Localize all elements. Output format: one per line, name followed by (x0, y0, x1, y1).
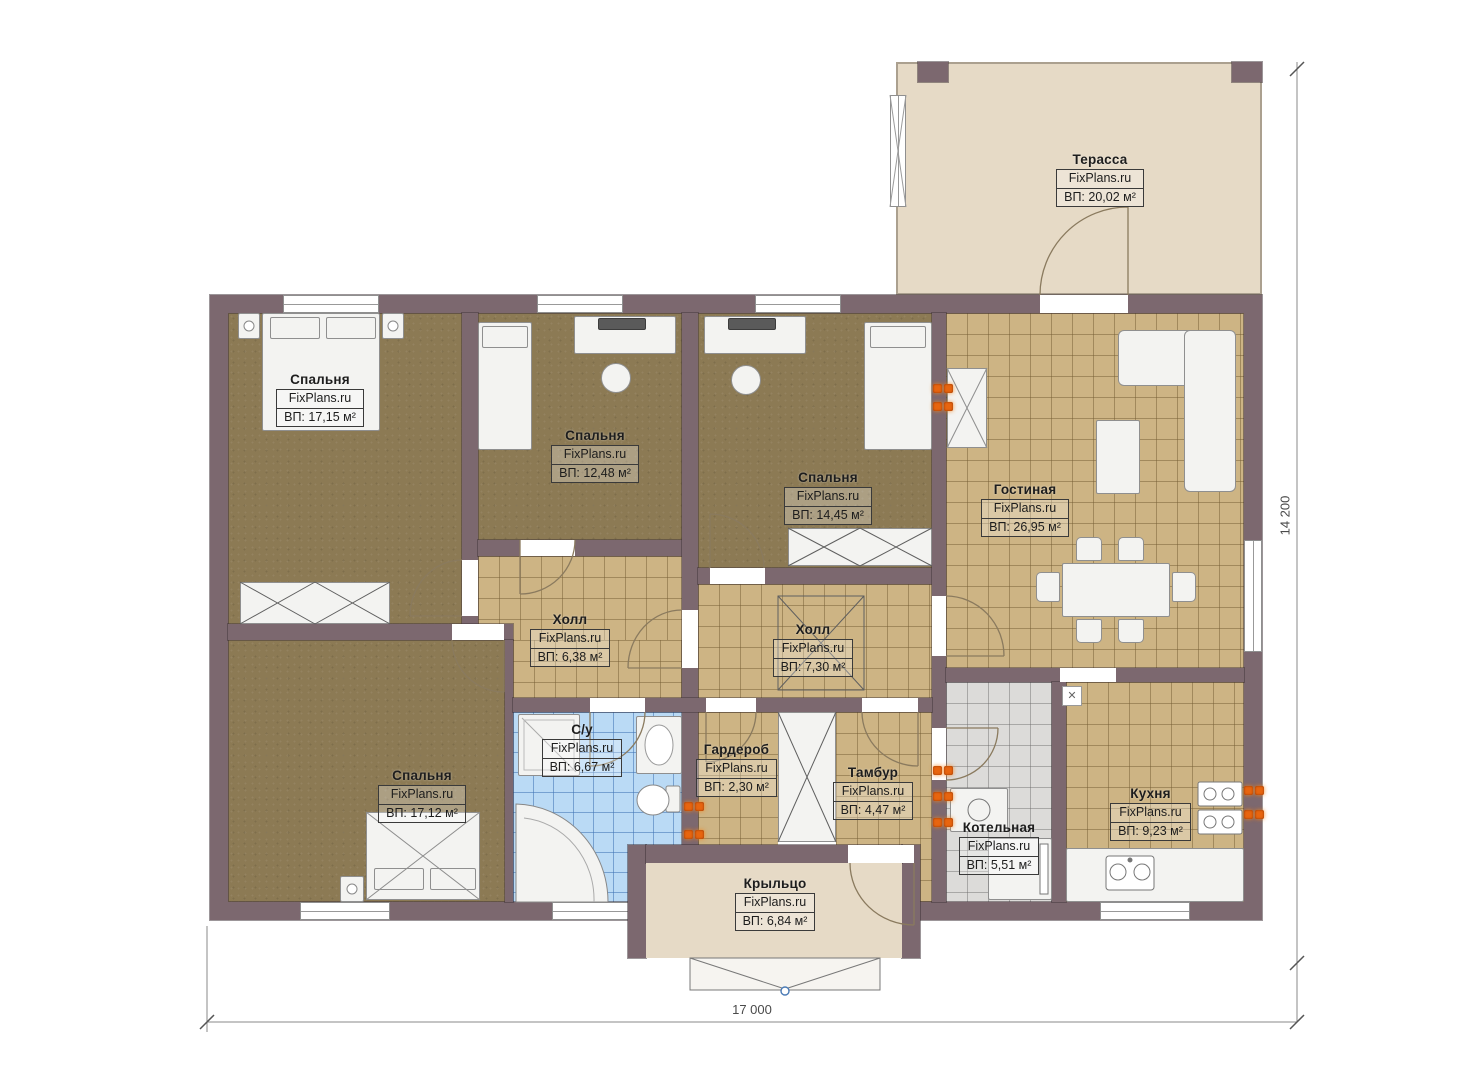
room-label-bedroom-bottom-left: Спальня FixPlans.ru ВП: 17,12 м² (352, 768, 492, 823)
dimension-width: 17 000 (712, 1002, 792, 1017)
kitchen-counter (1066, 848, 1244, 902)
room-brand: FixPlans.ru (379, 786, 465, 805)
room-name: Спальня (525, 428, 665, 443)
room-area: ВП: 7,30 м² (774, 659, 853, 677)
room-brand: FixPlans.ru (774, 640, 853, 659)
room-info-box: FixPlans.ru ВП: 6,38 м² (530, 629, 611, 667)
room-area: ВП: 2,30 м² (697, 779, 776, 797)
room-area: ВП: 4,47 м² (834, 802, 913, 820)
radiator (933, 402, 953, 411)
porch-steps (690, 958, 880, 995)
room-label-wardrobe: Гардероб FixPlans.ru ВП: 2,30 м² (684, 742, 789, 797)
room-info-box: FixPlans.ru ВП: 2,30 м² (696, 759, 777, 797)
room-label-boiler-room: Котельная FixPlans.ru ВП: 5,51 м² (938, 820, 1060, 875)
pillow (870, 326, 926, 348)
pillow (374, 868, 424, 890)
room-name: Кухня (1088, 786, 1213, 801)
room-name: Тамбур (818, 765, 928, 780)
nightstand (382, 313, 404, 339)
room-info-box: FixPlans.ru ВП: 6,67 м² (542, 739, 623, 777)
dimension-height: 14 200 (1278, 486, 1293, 546)
pillow (326, 317, 376, 339)
room-area: ВП: 6,38 м² (531, 649, 610, 667)
porch-side-wall (628, 845, 646, 958)
pillow (270, 317, 320, 339)
pillow (430, 868, 476, 890)
room-brand: FixPlans.ru (785, 488, 871, 507)
room-brand: FixPlans.ru (552, 446, 638, 465)
dining-chair (1118, 619, 1144, 643)
radiator (933, 792, 953, 801)
door-opening (710, 568, 765, 584)
room-info-box: FixPlans.ru ВП: 9,23 м² (1110, 803, 1191, 841)
room-name: Гардероб (684, 742, 789, 757)
room-area: ВП: 17,15 м² (277, 409, 363, 427)
terrace-pillar (1232, 62, 1262, 82)
room-area: ВП: 20,02 м² (1057, 189, 1143, 207)
room-area: ВП: 14,45 м² (785, 507, 871, 525)
desk-chair (731, 365, 761, 395)
washbasin-cabinet (636, 716, 682, 774)
room-brand: FixPlans.ru (277, 390, 363, 409)
interior-wall (682, 313, 698, 902)
room-area: ВП: 26,95 м² (982, 519, 1068, 537)
door-opening (932, 596, 946, 656)
dining-chair (1118, 537, 1144, 561)
radiator (933, 766, 953, 775)
room-info-box: FixPlans.ru ВП: 20,02 м² (1056, 169, 1144, 207)
window (755, 295, 841, 313)
room-label-terrace: Терасса FixPlans.ru ВП: 20,02 м² (1030, 152, 1170, 207)
room-name: Спальня (758, 470, 898, 485)
room-brand: FixPlans.ru (960, 838, 1039, 857)
room-label-bedroom-top-mid: Спальня FixPlans.ru ВП: 12,48 м² (525, 428, 665, 483)
room-name: Холл (505, 612, 635, 627)
window (537, 295, 623, 313)
room-info-box: FixPlans.ru ВП: 17,15 м² (276, 389, 364, 427)
nightstand (238, 313, 260, 339)
computer-monitor (598, 318, 646, 330)
room-label-living-room: Гостиная FixPlans.ru ВП: 26,95 м² (955, 482, 1095, 537)
tv-stand (947, 368, 987, 448)
dining-table (1062, 563, 1170, 617)
room-name: Холл (748, 622, 878, 637)
room-label-hall-left: Холл FixPlans.ru ВП: 6,38 м² (505, 612, 635, 667)
room-area: ВП: 17,12 м² (379, 805, 465, 823)
floor-plan-canvas: ✕ (0, 0, 1474, 1080)
room-info-box: FixPlans.ru ВП: 5,51 м² (959, 837, 1040, 875)
room-info-box: FixPlans.ru ВП: 17,12 м² (378, 785, 466, 823)
door-opening (682, 610, 698, 668)
room-name: Крыльцо (705, 876, 845, 891)
room-label-hall-right: Холл FixPlans.ru ВП: 7,30 м² (748, 622, 878, 677)
room-brand: FixPlans.ru (834, 783, 913, 802)
corner-sofa (1184, 330, 1236, 492)
room-area: ВП: 5,51 м² (960, 857, 1039, 875)
interior-wall (478, 540, 682, 556)
radiator (933, 384, 953, 393)
room-name: Терасса (1030, 152, 1170, 167)
room-area: ВП: 12,48 м² (552, 465, 638, 483)
room-brand: FixPlans.ru (1111, 804, 1190, 823)
terrace-door-opening (1040, 295, 1128, 313)
room-info-box: FixPlans.ru ВП: 6,84 м² (735, 893, 816, 931)
room-area: ВП: 6,84 м² (736, 913, 815, 931)
room-label-vestibule: Тамбур FixPlans.ru ВП: 4,47 м² (818, 765, 928, 820)
window (283, 295, 379, 313)
room-brand: FixPlans.ru (1057, 170, 1143, 189)
pillow (482, 326, 528, 348)
room-info-box: FixPlans.ru ВП: 26,95 м² (981, 499, 1069, 537)
radiator (684, 830, 704, 839)
room-name: Спальня (352, 768, 492, 783)
dining-chair (1076, 619, 1102, 643)
wardrobe-cabinet (240, 582, 390, 624)
room-brand: FixPlans.ru (531, 630, 610, 649)
nightstand (340, 876, 364, 902)
room-label-kitchen: Кухня FixPlans.ru ВП: 9,23 м² (1088, 786, 1213, 841)
room-brand: FixPlans.ru (697, 760, 776, 779)
wardrobe-cabinet (788, 528, 932, 566)
terrace-pillar (918, 62, 948, 82)
door-opening (862, 698, 918, 712)
window (1100, 902, 1190, 920)
room-name: Гостиная (955, 482, 1095, 497)
door-opening (706, 698, 756, 712)
door-opening (520, 540, 575, 556)
room-brand: FixPlans.ru (736, 894, 815, 913)
opening-marker: ✕ (1062, 686, 1082, 706)
room-area: ВП: 6,67 м² (543, 759, 622, 777)
room-label-bedroom-top-left: Спальня FixPlans.ru ВП: 17,15 м² (250, 372, 390, 427)
window (300, 902, 390, 920)
passage-opening (1060, 668, 1116, 682)
interior-wall (505, 640, 513, 902)
room-name: Спальня (250, 372, 390, 387)
door-opening (462, 560, 478, 616)
terrace-side-window (890, 95, 906, 207)
room-info-box: FixPlans.ru ВП: 14,45 м² (784, 487, 872, 525)
room-area: ВП: 9,23 м² (1111, 823, 1190, 841)
radiator (684, 802, 704, 811)
room-brand: FixPlans.ru (543, 740, 622, 759)
room-label-bathroom: С/у FixPlans.ru ВП: 6,67 м² (522, 722, 642, 777)
dining-chair (1076, 537, 1102, 561)
door-opening (452, 624, 504, 640)
room-info-box: FixPlans.ru ВП: 4,47 м² (833, 782, 914, 820)
desk-chair (601, 363, 631, 393)
room-name: С/у (522, 722, 642, 737)
radiator (1244, 786, 1264, 795)
dining-chair (1172, 572, 1196, 602)
window (1244, 540, 1262, 652)
room-name: Котельная (938, 820, 1060, 835)
coffee-table (1096, 420, 1140, 494)
room-label-porch: Крыльцо FixPlans.ru ВП: 6,84 м² (705, 876, 845, 931)
dining-chair (1036, 572, 1060, 602)
room-label-bedroom-top-right: Спальня FixPlans.ru ВП: 14,45 м² (758, 470, 898, 525)
computer-monitor (728, 318, 776, 330)
room-info-box: FixPlans.ru ВП: 7,30 м² (773, 639, 854, 677)
room-brand: FixPlans.ru (982, 500, 1068, 519)
radiator (1244, 810, 1264, 819)
entry-door-opening (848, 845, 914, 863)
room-info-box: FixPlans.ru ВП: 12,48 м² (551, 445, 639, 483)
door-opening (590, 698, 645, 712)
